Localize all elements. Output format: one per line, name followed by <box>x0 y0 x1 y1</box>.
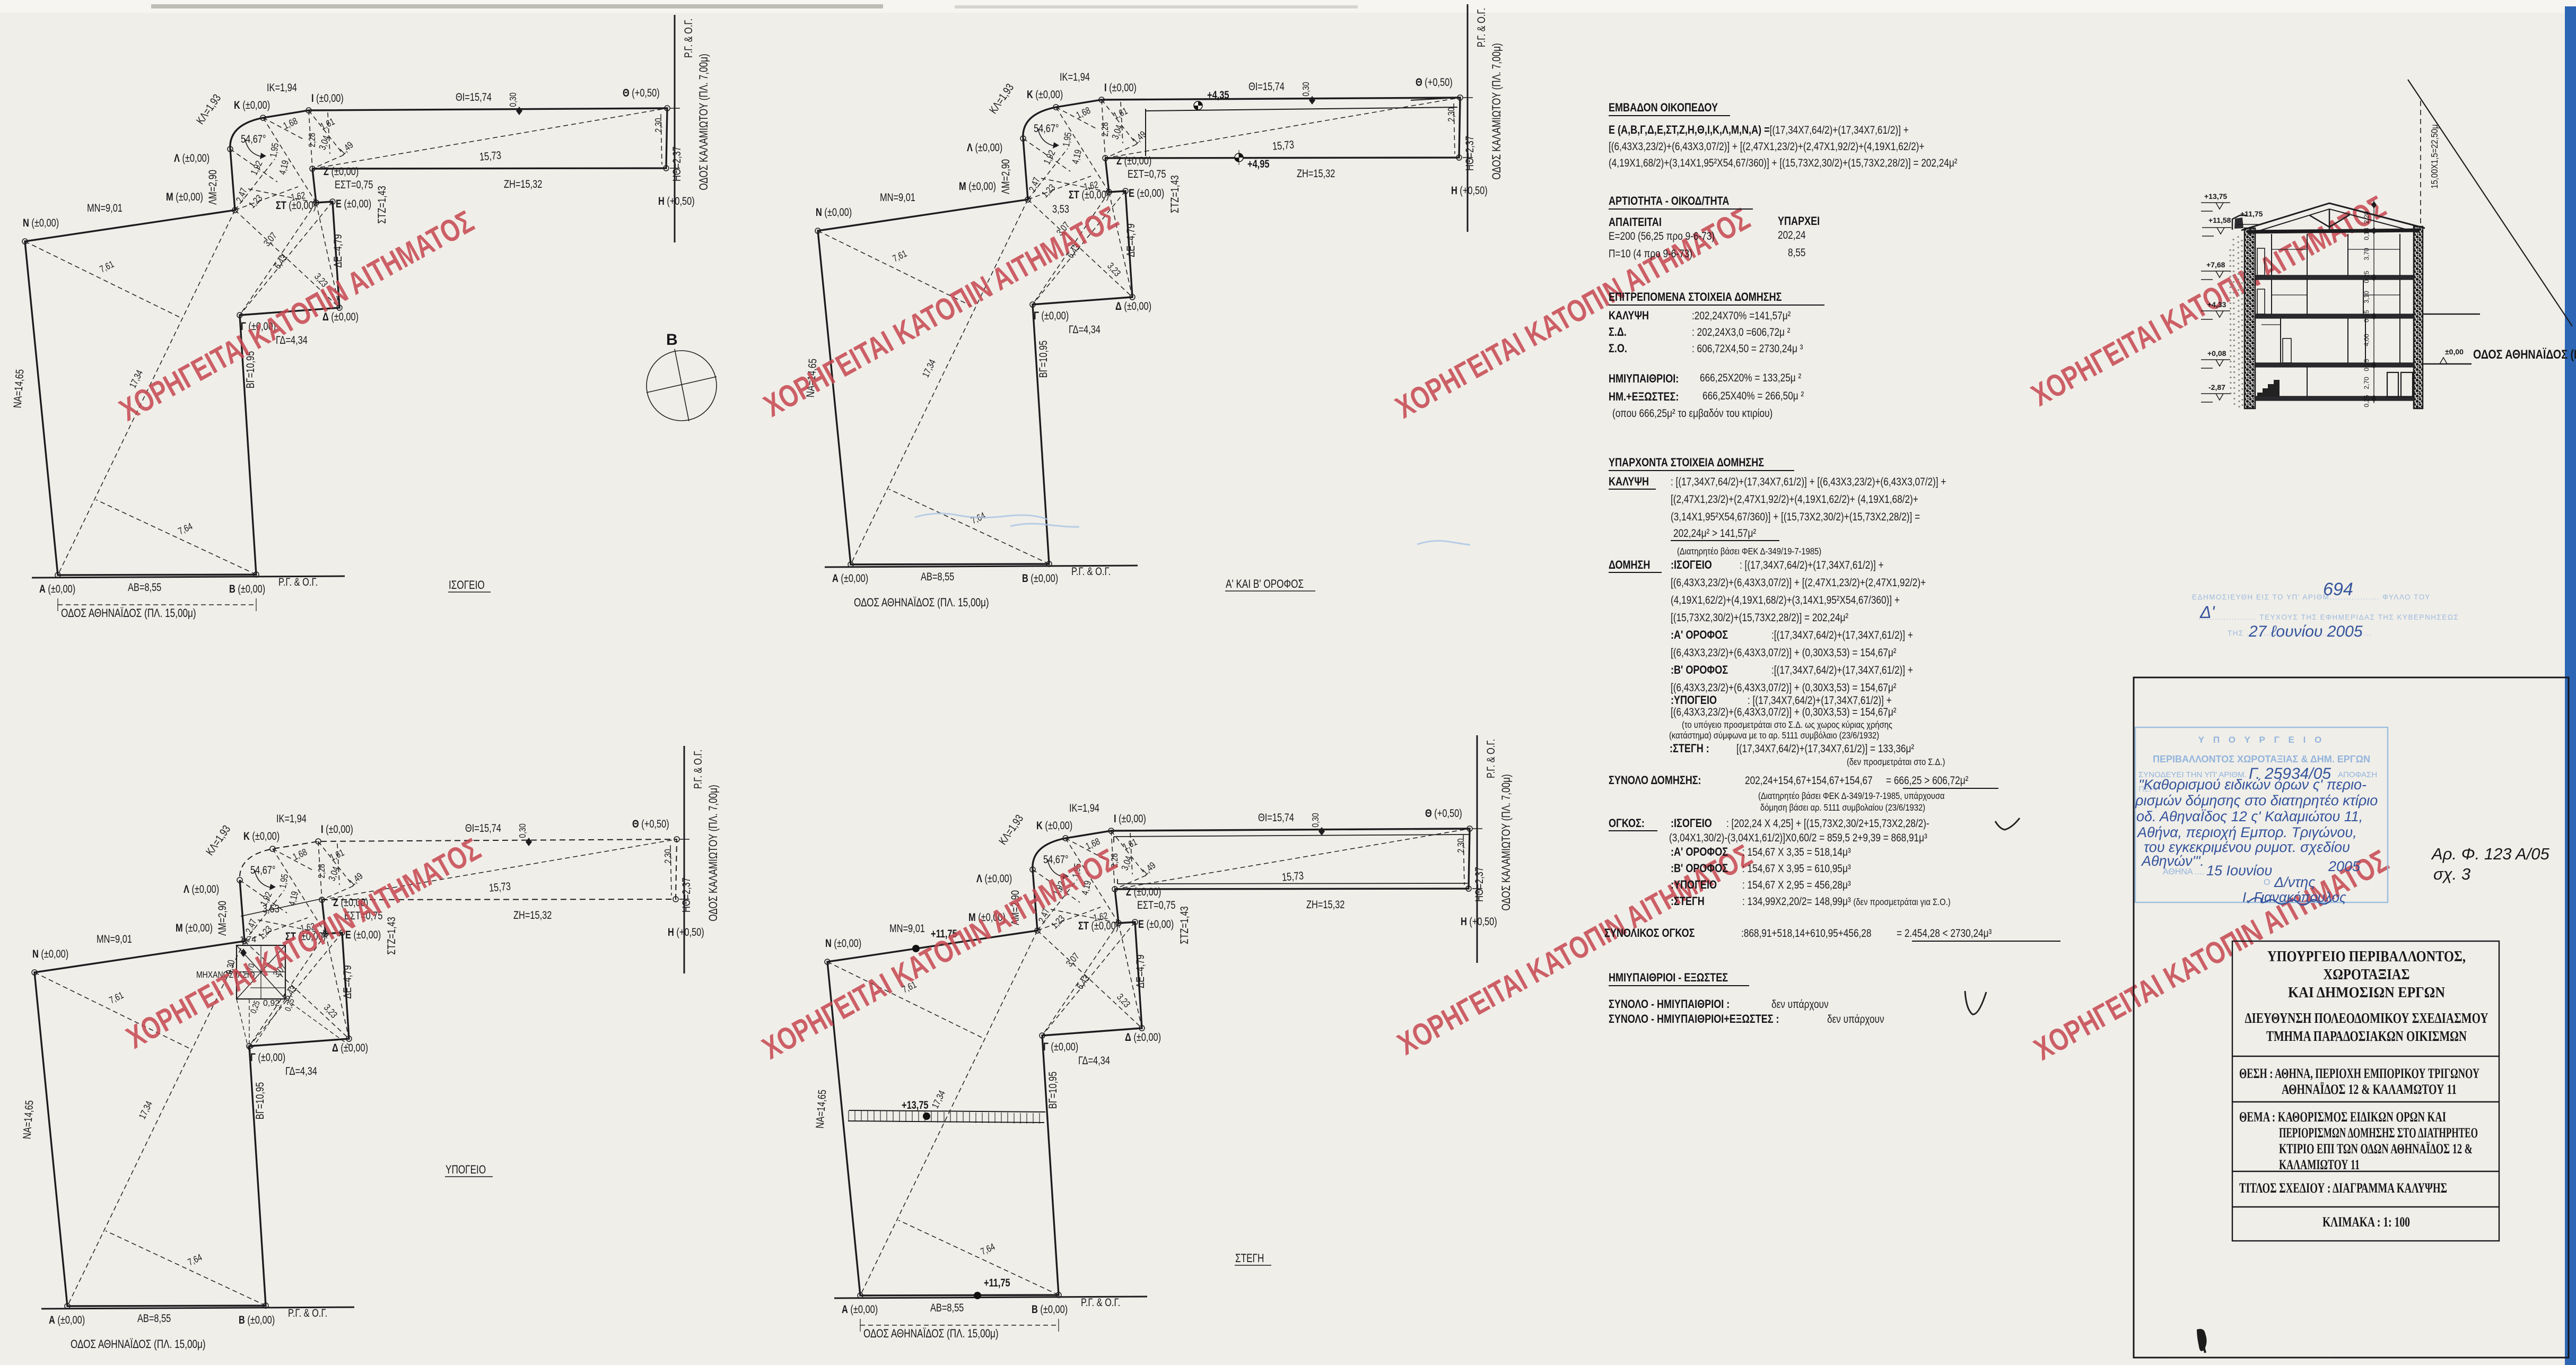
svg-text:+0,08: +0,08 <box>2207 349 2226 358</box>
svg-text:[(6,43X3,23/2)+(6,43X3,07/2)]: [(6,43X3,23/2)+(6,43X3,07/2)] + (0,30X3,… <box>1671 647 1897 659</box>
svg-text:0,25: 0,25 <box>2363 395 2370 407</box>
svg-text:ΣΥΝΟΛΟ ΔΟΜΗΣΗΣ:: ΣΥΝΟΛΟ ΔΟΜΗΣΗΣ: <box>1609 774 1701 787</box>
svg-text::Α' ΟΡΟΦΟΣ: :Α' ΟΡΟΦΟΣ <box>1671 629 1728 641</box>
svg-text:ρισμών δόμησης στο διατηρητέο: ρισμών δόμησης στο διατηρητέο κτίριο <box>2135 793 2378 808</box>
svg-text:(οπου 666,25μ² το εμβαδόν του: (οπου 666,25μ² το εμβαδόν του κτιρίου) <box>1612 408 1772 420</box>
svg-text:(3,04X1,30/2)-(3,04X1,61/2)]X0: (3,04X1,30/2)-(3,04X1,61/2)]X0,60/2 = 85… <box>1669 832 1927 845</box>
svg-text:[(2,47X1,23/2)+(2,47X1,92/2)+(: [(2,47X1,23/2)+(2,47X1,92/2)+(4,19X1,62/… <box>1671 494 1918 506</box>
svg-text:= 666,25 > 606,72μ²: = 666,25 > 606,72μ² <box>1886 775 1969 787</box>
svg-text::ΥΠΟΓΕΙΟ: :ΥΠΟΓΕΙΟ <box>1671 694 1717 707</box>
svg-text::ΥΠΟΓΕΙΟ: :ΥΠΟΓΕΙΟ <box>1671 879 1717 891</box>
svg-text:ΑΠΑΙΤΕΙΤΑΙ: ΑΠΑΙΤΕΙΤΑΙ <box>1609 216 1662 229</box>
svg-text:0,25: 0,25 <box>2363 359 2370 371</box>
svg-text::[(17,34X7,64/2)+(17,34X7,61/2: :[(17,34X7,64/2)+(17,34X7,61/2)] + <box>1771 665 1913 677</box>
svg-text:ΕΜΒΑΔΟΝ ΟΙΚΟΠΕΔΟΥ: ΕΜΒΑΔΟΝ ΟΙΚΟΠΕΔΟΥ <box>1609 101 1718 114</box>
svg-text:3,70: 3,70 <box>2363 248 2370 260</box>
svg-text:Ι. Γιανακόπουλος: Ι. Γιανακόπουλος <box>2242 889 2346 905</box>
svg-text:ΚΑΛΥΨΗ: ΚΑΛΥΨΗ <box>1609 475 1649 488</box>
svg-text:= 2.454,28 < 2730,24μ³: = 2.454,28 < 2730,24μ³ <box>1897 928 1992 940</box>
svg-text:ΚΤΙΡΙΟ ΕΠΙ ΤΩΝ ΟΔΩΝ ΑΘΗΝΑΪΔΟΣ: ΚΤΙΡΙΟ ΕΠΙ ΤΩΝ ΟΔΩΝ ΑΘΗΝΑΪΔΟΣ 12 & <box>2279 1141 2473 1157</box>
svg-text::868,91+518,14+610,95+456,28: :868,91+518,14+610,95+456,28 <box>1741 928 1871 940</box>
svg-text:ΕΔΗΜΟΣΙΕΥΘΗ ΕΙΣ ΤΟ ΥΠ' ΑΡΙΘ: ΕΔΗΜΟΣΙΕΥΘΗ ΕΙΣ ΤΟ ΥΠ' ΑΡΙΘΜ............… <box>2192 593 2431 601</box>
svg-text:-2,87: -2,87 <box>2208 383 2225 392</box>
svg-text::ΙΣΟΓΕΙΟ: :ΙΣΟΓΕΙΟ <box>1671 817 1712 830</box>
svg-text:3,53: 3,53 <box>1052 203 1069 215</box>
svg-text:ΥΠΑΡΧΕΙ: ΥΠΑΡΧΕΙ <box>1778 215 1820 228</box>
svg-text:666,25X40% = 266,50μ ²: 666,25X40% = 266,50μ ² <box>1702 390 1804 403</box>
svg-text:ΔΟΜΗΣΗ: ΔΟΜΗΣΗ <box>1609 559 1650 571</box>
svg-text:ΚΑΛΥΨΗ: ΚΑΛΥΨΗ <box>1609 309 1649 322</box>
svg-text:"Καθορισμού ειδικών όρων ς' πε: "Καθορισμού ειδικών όρων ς' περιο- <box>2138 777 2367 793</box>
svg-text:0,18: 0,18 <box>2363 228 2370 240</box>
svg-text::Α' ΟΡΟΦΟΣ: :Α' ΟΡΟΦΟΣ <box>1671 846 1728 858</box>
svg-text:(το υπόγειο προσμετράται στο Σ: (το υπόγειο προσμετράται στο Σ.Δ. ως χωρ… <box>1682 720 1892 731</box>
svg-text:Δ/ντης: Δ/ντης <box>2274 874 2316 890</box>
svg-text:ΠΕΡΙΒΑΛΛΟΝΤΟΣ ΧΩΡΟΤΑΞΙΑΣ &: ΠΕΡΙΒΑΛΛΟΝΤΟΣ ΧΩΡΟΤΑΞΙΑΣ & ΔΗΜ. ΕΡΓΩΝ <box>2153 754 2370 764</box>
svg-text:: [(17,34X7,64/2)+(17,34X7,61/: : [(17,34X7,64/2)+(17,34X7,61/2)] + [(6,… <box>1671 476 1946 489</box>
svg-text:8,55: 8,55 <box>1788 247 1806 259</box>
svg-text:ΣΥΝΟΛΟ - ΗΜΙΥΠΑΙΘΡΙΟΙ+ΕΞΩΣΤΕΣ: ΣΥΝΟΛΟ - ΗΜΙΥΠΑΙΘΡΙΟΙ+ΕΞΩΣΤΕΣ : <box>1609 1013 1779 1025</box>
svg-text:Π=10 (4 προ 9-6-73): Π=10 (4 προ 9-6-73) <box>1609 248 1692 260</box>
svg-text:..................... ΤΕΥΧΟΥΣ: ..................... ΤΕΥΧΟΥΣ ΤΗΣ ΕΦΗΜΕΡ… <box>2198 613 2459 621</box>
svg-text:ΥΠΟΓΕΙΟ: ΥΠΟΓΕΙΟ <box>446 1163 486 1177</box>
svg-text:ΑΡΤΙΟΤΗΤΑ - ΟΙΚΟΔ/ΤΗΤΑ: ΑΡΤΙΟΤΗΤΑ - ΟΙΚΟΔ/ΤΗΤΑ <box>1609 195 1729 207</box>
svg-text::ΣΤΕΓΗ: :ΣΤΕΓΗ <box>1671 895 1705 908</box>
svg-text:Δ': Δ' <box>2199 603 2215 622</box>
svg-text::Β' ΟΡΟΦΟΣ: :Β' ΟΡΟΦΟΣ <box>1671 862 1728 875</box>
svg-text:27 ℓουνίου 2005: 27 ℓουνίου 2005 <box>2248 623 2363 640</box>
svg-text:3,10: 3,10 <box>2363 291 2370 303</box>
svg-text:[(15,73X2,30/2)+(15,73X2,28/2): [(15,73X2,30/2)+(15,73X2,28/2)] = 202,24… <box>1671 612 1849 624</box>
svg-text:ΔΙΕΥΘΥΝΣΗ ΠΟΛΕΟΔΟΜΙΚΟΥ ΣΧΕΔΙΑΣ: ΔΙΕΥΘΥΝΣΗ ΠΟΛΕΟΔΟΜΙΚΟΥ ΣΧΕΔΙΑΣΜΟΥ <box>2245 1010 2488 1026</box>
svg-text:ΣΥΝΟΛΟ - ΗΜΙΥΠΑΙΘΡΙΟΙ :: ΣΥΝΟΛΟ - ΗΜΙΥΠΑΙΘΡΙΟΙ : <box>1609 998 1730 1011</box>
svg-text:Ε (Α,Β,Γ,Δ,Ε,ΣΤ,Ζ,Η,Θ,Ι,Κ,Λ,Μ,: Ε (Α,Β,Γ,Δ,Ε,ΣΤ,Ζ,Η,Θ,Ι,Κ,Λ,Μ,Ν,Α) =[(17… <box>1609 124 1909 136</box>
svg-text:694: 694 <box>2323 579 2353 599</box>
svg-text:(4,19X1,68/2)+(3,14X1,95²X54,6: (4,19X1,68/2)+(3,14X1,95²X54,67/360)] + … <box>1609 158 1958 170</box>
svg-text:ΕΠΙΤΡΕΠΟΜΕΝΑ ΣΤΟΙΧΕΙΑ ΔΟΜΗΣΗΣ: ΕΠΙΤΡΕΠΟΜΕΝΑ ΣΤΟΙΧΕΙΑ ΔΟΜΗΣΗΣ <box>1609 291 1782 303</box>
svg-text:202,24+154,67+154,67+154,67: 202,24+154,67+154,67+154,67 <box>1745 775 1873 787</box>
svg-text:ΚΑΛΑΜΙΩΤΟΥ 11: ΚΑΛΑΜΙΩΤΟΥ 11 <box>2279 1157 2360 1172</box>
svg-text:Α' ΚΑΙ Β' ΟΡΟΦΟΣ: Α' ΚΑΙ Β' ΟΡΟΦΟΣ <box>1226 578 1304 591</box>
svg-text:δεν υπάρχουν: δεν υπάρχουν <box>1827 1014 1884 1026</box>
svg-text:(δεν προσμετράται στο Σ.Δ.): (δεν προσμετράται στο Σ.Δ.) <box>1847 757 1945 768</box>
svg-text:Αρ. Φ. 123 Α/05: Αρ. Φ. 123 Α/05 <box>2431 845 2550 863</box>
svg-text:: 154,67 X 3,35 = 518,14μ³: : 154,67 X 3,35 = 518,14μ³ <box>1742 847 1851 859</box>
svg-text:(κατάστημα) σύμφωνα με το αρ.: (κατάστημα) σύμφωνα με το αρ. 5111 συμβό… <box>1669 731 1879 741</box>
svg-text:: 154,67 X 3,95 = 610,95μ³: : 154,67 X 3,95 = 610,95μ³ <box>1742 863 1851 875</box>
svg-text:ΙΣΟΓΕΙΟ: ΙΣΟΓΕΙΟ <box>449 579 485 592</box>
svg-text:ΗΜ.+ΕΞΩΣΤΕΣ:: ΗΜ.+ΕΞΩΣΤΕΣ: <box>1609 390 1679 403</box>
svg-text:: [(17,34X7,64/2)+(17,34X7,61/: : [(17,34X7,64/2)+(17,34X7,61/2)] + <box>1748 695 1892 707</box>
svg-text:δεν υπάρχουν: δεν υπάρχουν <box>1771 999 1829 1011</box>
svg-text:B: B <box>666 331 678 349</box>
svg-text:2,20: 2,20 <box>2363 211 2370 224</box>
svg-text::Β' ΟΡΟΦΟΣ: :Β' ΟΡΟΦΟΣ <box>1671 664 1728 676</box>
svg-text:ΤΙΤΛΟΣ ΣΧΕΔΙΟΥ : ΔΙΑΓΡΑΜΜΑ ΚΑ: ΤΙΤΛΟΣ ΣΧΕΔΙΟΥ : ΔΙΑΓΡΑΜΜΑ ΚΑΛΥΨΗΣ <box>2239 1180 2447 1196</box>
svg-text:σχ. 3: σχ. 3 <box>2433 865 2470 883</box>
svg-text:+4,33: +4,33 <box>2207 300 2226 309</box>
svg-text:4,00: 4,00 <box>2363 334 2370 346</box>
svg-text:ΣΤΕΓΗ: ΣΤΕΓΗ <box>1235 1252 1264 1265</box>
svg-text:οδ. ΑθηναΪδος 12 ς' Καλαμιώτου: οδ. ΑθηναΪδος 12 ς' Καλαμιώτου 11, <box>2136 808 2363 824</box>
svg-text:ΗΜΙΥΠΑΙΘΡΙΟΙ:: ΗΜΙΥΠΑΙΘΡΙΟΙ: <box>1609 372 1679 385</box>
svg-text:[(6,43X3,23/2)+(6,43X3,07/2)]: [(6,43X3,23/2)+(6,43X3,07/2)] + (0,30X3,… <box>1671 707 1897 719</box>
svg-text:+13,75: +13,75 <box>902 1099 929 1111</box>
svg-text:: 154,67 X 2,95 = 456,28μ³: : 154,67 X 2,95 = 456,28μ³ <box>1742 880 1851 892</box>
svg-text:ΑΘΗΝΑ ....: ΑΘΗΝΑ .... <box>2163 867 2204 876</box>
svg-text:0,92: 0,92 <box>263 999 280 1008</box>
svg-text:+4,35: +4,35 <box>1207 89 1229 101</box>
svg-text:+4,95: +4,95 <box>1247 158 1269 170</box>
svg-text:ΠΕΡΙΟΡΙΣΜΩΝ ΔΟΜΗΣΗΣ ΣΤΟ ΔΙΑΤΗΡ: ΠΕΡΙΟΡΙΣΜΩΝ ΔΟΜΗΣΗΣ ΣΤΟ ΔΙΑΤΗΡΗΤΕΟ <box>2279 1125 2478 1141</box>
svg-text:ΤΜΗΜΑ ΠΑΡΑΔΟΣΙΑΚΩΝ ΟΙΚΙΣΜΩΝ: ΤΜΗΜΑ ΠΑΡΑΔΟΣΙΑΚΩΝ ΟΙΚΙΣΜΩΝ <box>2266 1028 2467 1044</box>
svg-text:ΧΩΡΟΤΑΞΙΑΣ: ΧΩΡΟΤΑΞΙΑΣ <box>2324 967 2410 983</box>
svg-text:±0,00: ±0,00 <box>2445 347 2464 356</box>
svg-text:ΘΕΜΑ : ΚΑΘΟΡΙΣΜΟΣ ΕΙΔΙΚΩΝ ΟΡΩ: ΘΕΜΑ : ΚΑΘΟΡΙΣΜΟΣ ΕΙΔΙΚΩΝ ΟΡΩΝ ΚΑΙ <box>2239 1109 2446 1125</box>
svg-text:δόμηση βάσει αρ. 5111 συμβολαί: δόμηση βάσει αρ. 5111 συμβολαίου (23/6/1… <box>1760 803 1925 813</box>
svg-text:: 202,24X3,0 =606,72μ ²: : 202,24X3,0 =606,72μ ² <box>1692 327 1791 339</box>
svg-text:2,70: 2,70 <box>2363 377 2370 389</box>
svg-text:15,00X1,5=22,50μ: 15,00X1,5=22,50μ <box>2430 124 2440 188</box>
svg-text:: 606,72X4,50 = 2730,24μ ³: : 606,72X4,50 = 2730,24μ ³ <box>1692 343 1803 355</box>
svg-text:Ο: Ο <box>2264 878 2270 887</box>
svg-text::ΙΣΟΓΕΙΟ: :ΙΣΟΓΕΙΟ <box>1671 559 1712 571</box>
svg-text:[(17,34X7,64/2)+(17,34X7,61/2): [(17,34X7,64/2)+(17,34X7,61/2)] = 133,36… <box>1736 743 1915 755</box>
svg-text:: [(17,34X7,64/2)+(17,34X7,61/: : [(17,34X7,64/2)+(17,34X7,61/2)] + <box>1740 560 1884 572</box>
svg-text:ΚΑΙ ΔΗΜΟΣΙΩΝ ΕΡΓΩΝ: ΚΑΙ ΔΗΜΟΣΙΩΝ ΕΡΓΩΝ <box>2288 985 2445 1001</box>
svg-text:ΘΕΣΗ : ΑΘΗΝΑ, ΠΕΡΙΟΧΗ ΕΜΠΟΡΙ: ΘΕΣΗ : ΑΘΗΝΑ, ΠΕΡΙΟΧΗ ΕΜΠΟΡΙΚΟΥ ΤΡΙΓΩΝΟΥ <box>2239 1066 2479 1081</box>
svg-text:ΥΠΑΡΧΟΝΤΑ ΣΤΟΙΧΕΙΑ ΔΟΜΗΣΗΣ: ΥΠΑΡΧΟΝΤΑ ΣΤΟΙΧΕΙΑ ΔΟΜΗΣΗΣ <box>1609 456 1764 469</box>
svg-text:ΑΘΗΝΑΪΔΟΣ 12 & ΚΑΛΑΜΩΤΟΥ 11: ΑΘΗΝΑΪΔΟΣ 12 & ΚΑΛΑΜΩΤΟΥ 11 <box>2282 1082 2457 1097</box>
svg-text:ΟΓΚΟΣ:: ΟΓΚΟΣ: <box>1609 817 1645 830</box>
svg-text:[(6,43X3,23/2)+(6,43X3,07/2)]: [(6,43X3,23/2)+(6,43X3,07/2)] + [(2,47X1… <box>1671 577 1926 589</box>
svg-text:0,25: 0,25 <box>2363 271 2370 283</box>
svg-text:Αθήνα, περιοχή Εμπορ. Τριγώνου: Αθήνα, περιοχή Εμπορ. Τριγώνου, <box>2136 824 2357 840</box>
svg-text:(Διατηρητέο βάσει ΦΕΚ Δ-349/19: (Διατηρητέο βάσει ΦΕΚ Δ-349/19-7-1985, υ… <box>1758 791 1945 802</box>
svg-text:+11,75: +11,75 <box>2240 210 2263 218</box>
svg-text:Αθηνών'".: Αθηνών'". <box>2141 853 2204 869</box>
svg-text:ΚΛΙΜΑΚΑ : 1: 100: ΚΛΙΜΑΚΑ : 1: 100 <box>2322 1214 2410 1230</box>
svg-text:2005: 2005 <box>2328 858 2361 874</box>
svg-text::202,24X70% =141,57μ²: :202,24X70% =141,57μ² <box>1692 310 1791 323</box>
svg-text:(Διατηρητέο βάσει ΦΕΚ Δ-349/19: (Διατηρητέο βάσει ΦΕΚ Δ-349/19-7-1985) <box>1677 546 1821 557</box>
svg-text:+11,75: +11,75 <box>984 1276 1010 1289</box>
svg-text:202,24μ² > 141,57μ²: 202,24μ² > 141,57μ² <box>1673 528 1757 540</box>
svg-text:(4,19X1,62/2)+(4,19X1,68/2)+(3: (4,19X1,62/2)+(4,19X1,68/2)+(3,14X1,95²X… <box>1671 595 1900 607</box>
svg-text::ΣΤΕΓΗ :: :ΣΤΕΓΗ : <box>1670 742 1709 755</box>
svg-text:202,24: 202,24 <box>1778 230 1806 242</box>
svg-text:+11,58: +11,58 <box>2208 216 2231 224</box>
svg-text:0,25: 0,25 <box>2363 310 2370 323</box>
svg-text:(3,14X1,95²X54,67/360)] + [(15: (3,14X1,95²X54,67/360)] + [(15,73X2,30/2… <box>1671 511 1920 524</box>
svg-text:666,25X20% = 133,25μ ²: 666,25X20% = 133,25μ ² <box>1700 372 1802 385</box>
svg-text:: [202,24 X 4,25] + [(15,73X2,: : [202,24 X 4,25] + [(15,73X2,30/2+15,73… <box>1726 818 1929 830</box>
svg-text:ΗΜΙΥΠΑΙΘΡΙΟΙ - ΕΞΩΣΤΕΣ: ΗΜΙΥΠΑΙΘΡΙΟΙ - ΕΞΩΣΤΕΣ <box>1609 971 1728 984</box>
svg-text::[(17,34X7,64/2)+(17,34X7,61/2: :[(17,34X7,64/2)+(17,34X7,61/2)] + <box>1771 630 1913 642</box>
svg-text:: 134,99X2,20/2= 148,99μ³ (δε: : 134,99X2,20/2= 148,99μ³ (δεν προσμετρά… <box>1742 896 1951 908</box>
svg-text:+13,75: +13,75 <box>2204 192 2227 201</box>
svg-text:Υ Π Ο Υ Ρ Γ Ε Ι Ο: Υ Π Ο Υ Ρ Γ Ε Ι Ο <box>2198 735 2325 745</box>
svg-text:[(6,43X3,23/2)+(6,43X3,07/2)]: [(6,43X3,23/2)+(6,43X3,07/2)] + [(2,47X1… <box>1609 141 1924 153</box>
svg-text:Ε=200 (56,25 προ 9-6-73): Ε=200 (56,25 προ 9-6-73) <box>1609 231 1715 243</box>
svg-text:+7,68: +7,68 <box>2206 260 2225 269</box>
svg-text:ΟΔΟΣ ΑΘΗΝΑΪΔΟΣ (Π: ΟΔΟΣ ΑΘΗΝΑΪΔΟΣ (Π <box>2473 347 2576 361</box>
svg-text:ΣΥΝΟΛΙΚΟΣ ΟΓΚΟΣ: ΣΥΝΟΛΙΚΟΣ ΟΓΚΟΣ <box>1604 927 1695 940</box>
svg-text:Σ.Δ.: Σ.Δ. <box>1609 326 1627 338</box>
svg-text:15 Ιουνίου: 15 Ιουνίου <box>2206 863 2272 879</box>
svg-text:3,53: 3,53 <box>263 902 280 915</box>
svg-text:[(6,43X3,23/2)+(6,43X3,07/2)]: [(6,43X3,23/2)+(6,43X3,07/2)] + (0,30X3,… <box>1671 682 1897 694</box>
svg-text:Σ.Ο.: Σ.Ο. <box>1609 342 1627 355</box>
svg-text:ΥΠΟΥΡΓΕΙΟ ΠΕΡΙΒΑΛΛΟΝΤΟΣ,: ΥΠΟΥΡΓΕΙΟ ΠΕΡΙΒΑΛΛΟΝΤΟΣ, <box>2267 949 2466 965</box>
svg-text:1,74: 1,74 <box>240 935 256 944</box>
